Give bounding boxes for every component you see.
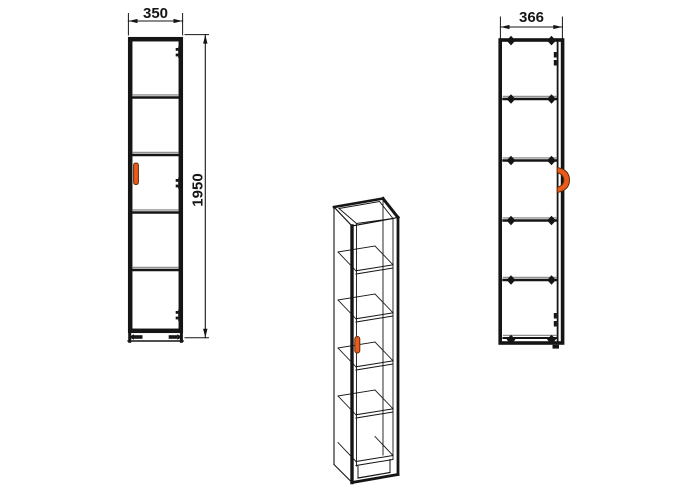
cabinet-drawing <box>0 0 700 500</box>
perspective-shelf <box>338 342 393 370</box>
perspective-shelf <box>338 246 393 274</box>
front-height-label: 1950 <box>191 173 206 206</box>
perspective-door-handle-icon <box>355 337 360 354</box>
perspective-view <box>334 199 398 483</box>
perspective-shelf <box>338 294 393 322</box>
blueprint-canvas: 350 1950 366 <box>0 0 700 500</box>
side-view <box>500 36 569 349</box>
side-depth-label: 366 <box>500 10 563 25</box>
front-door-handle-icon <box>134 163 139 185</box>
front-width-label: 350 <box>128 6 183 21</box>
perspective-shelf <box>338 390 393 418</box>
perspective-base <box>334 437 398 483</box>
front-view <box>128 39 183 341</box>
foot-marker <box>553 345 560 349</box>
